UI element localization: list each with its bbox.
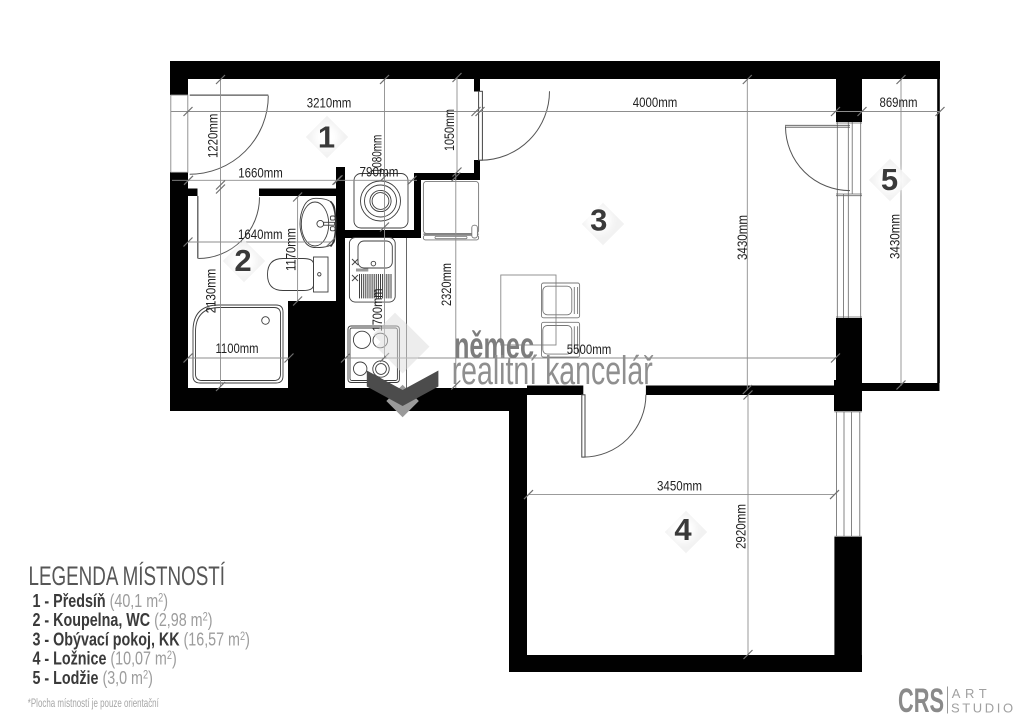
svg-text:3450mm: 3450mm (657, 479, 702, 494)
svg-text:2 - Koupelna, WC (2,98 m2): 2 - Koupelna, WC (2,98 m2) (33, 609, 213, 630)
svg-text:1640mm: 1640mm (238, 227, 283, 242)
svg-text:2320mm: 2320mm (439, 263, 454, 306)
svg-text:5: 5 (881, 162, 898, 197)
svg-text:3 - Obývací pokoj, KK (16,57 m: 3 - Obývací pokoj, KK (16,57 m2) (33, 629, 250, 650)
svg-text:4: 4 (674, 512, 692, 547)
svg-text:1080mm: 1080mm (370, 135, 385, 174)
svg-text:1170mm: 1170mm (283, 228, 298, 271)
svg-text:1660mm: 1660mm (238, 165, 283, 180)
svg-text:3210mm: 3210mm (307, 95, 352, 110)
svg-text:4000mm: 4000mm (633, 95, 678, 110)
svg-text:869mm: 869mm (880, 95, 918, 110)
svg-text:2: 2 (234, 243, 251, 278)
svg-text:1: 1 (318, 119, 335, 154)
svg-text:1050mm: 1050mm (442, 109, 457, 151)
svg-text:4 - Ložnice (10,07 m2): 4 - Ložnice (10,07 m2) (33, 648, 177, 669)
svg-text:2920mm: 2920mm (734, 504, 749, 549)
svg-text:2130mm: 2130mm (204, 269, 219, 314)
svg-text:3: 3 (590, 203, 607, 238)
svg-text:*Plocha místností je pouze ori: *Plocha místností je pouze orientační (28, 696, 159, 710)
svg-text:CRS: CRS (898, 682, 944, 720)
svg-text:1 - Předsíň (40,1 m2): 1 - Předsíň (40,1 m2) (33, 590, 169, 611)
svg-text:realitní kancelář: realitní kancelář (452, 349, 654, 393)
svg-text:ART: ART (952, 686, 992, 701)
svg-text:5 - Lodžie (3,0 m2): 5 - Lodžie (3,0 m2) (33, 667, 153, 688)
svg-text:3430mm: 3430mm (735, 215, 750, 260)
svg-text:1220mm: 1220mm (206, 114, 221, 159)
svg-text:LEGENDA MÍSTNOSTÍ: LEGENDA MÍSTNOSTÍ (29, 561, 226, 591)
svg-text:3430mm: 3430mm (888, 214, 903, 259)
svg-text:STUDIO: STUDIO (951, 701, 1016, 716)
svg-text:1100mm: 1100mm (216, 341, 259, 356)
